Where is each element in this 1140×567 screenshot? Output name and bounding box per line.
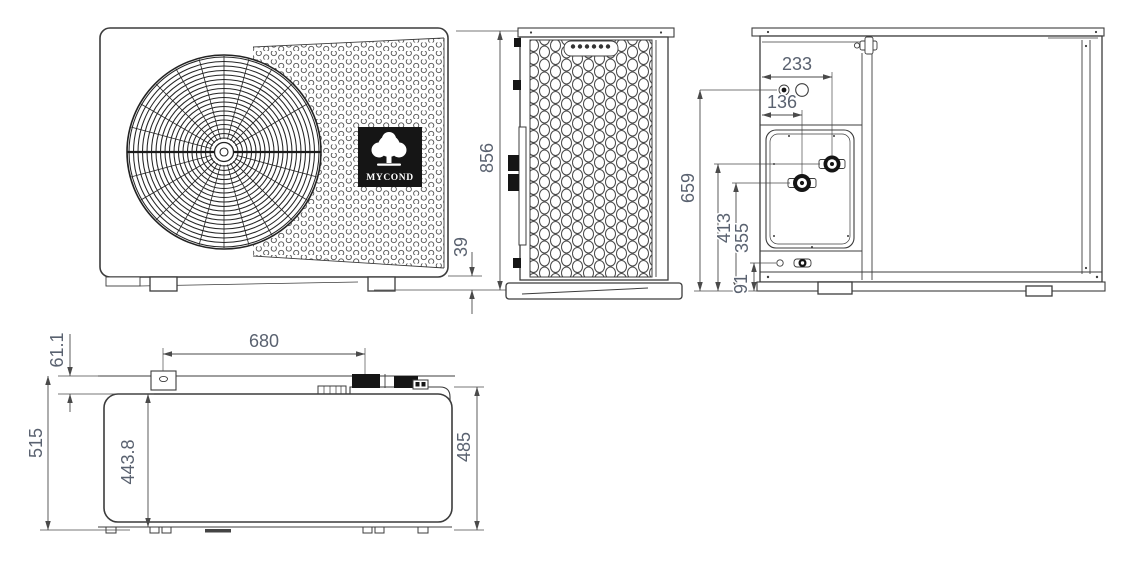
side-perforated-panel xyxy=(530,40,652,277)
back-top-cap xyxy=(752,28,1104,36)
dim-text-413: 413 xyxy=(714,213,734,243)
side-base xyxy=(506,283,682,299)
top-bottom-plate xyxy=(98,527,452,533)
drain-hole-icon xyxy=(777,260,783,266)
drain-fitting-icon xyxy=(794,259,811,267)
dim-top-cover-depth: 485 xyxy=(454,387,484,530)
dim-text-515: 515 xyxy=(26,428,46,458)
access-panel xyxy=(766,130,854,248)
dim-text-136: 136 xyxy=(767,92,797,112)
back-right-foot xyxy=(1026,286,1052,296)
dim-text-355: 355 xyxy=(732,223,752,253)
cable-port-icon xyxy=(796,84,809,97)
side-top-cap xyxy=(518,28,674,37)
dim-top-bracket-spacing: 680 xyxy=(163,331,365,374)
brand-logo-text: MYCOND xyxy=(366,173,413,183)
dim-text-659: 659 xyxy=(678,173,698,203)
front-base xyxy=(106,277,395,291)
top-body-outline xyxy=(104,394,452,522)
side-connector-upper xyxy=(508,155,519,171)
brand-logo: MYCOND xyxy=(358,127,422,187)
back-left-foot xyxy=(818,282,852,294)
small-terminal-icon xyxy=(413,380,428,389)
side-view: 856 xyxy=(456,28,682,299)
center-pad xyxy=(205,529,231,533)
dim-text-233: 233 xyxy=(782,54,812,74)
front-left-foot xyxy=(150,277,177,291)
dim-text-680: 680 xyxy=(249,331,279,351)
mounting-bracket xyxy=(151,371,176,390)
side-connector-lower xyxy=(508,174,519,191)
dim-text-485: 485 xyxy=(454,432,474,462)
technical-drawing: MYCOND 39 xyxy=(0,0,1140,567)
side-handle xyxy=(564,41,618,56)
dim-text-443-8: 443.8 xyxy=(118,439,138,484)
back-view: 233 136 659 413 355 91 xyxy=(678,28,1105,296)
front-right-foot xyxy=(368,277,395,291)
dim-text-856: 856 xyxy=(477,143,497,173)
dim-text-61-1: 61.1 xyxy=(47,332,67,367)
top-connector-1 xyxy=(352,374,380,388)
fan-grille-icon xyxy=(127,55,321,249)
front-view: MYCOND 39 xyxy=(100,28,506,314)
top-view: 61.1 515 443.8 680 485 xyxy=(26,331,484,533)
ribbed-vent-icon xyxy=(318,386,346,394)
drawing-canvas: MYCOND 39 xyxy=(0,0,1140,567)
dim-text-39: 39 xyxy=(451,237,471,257)
dim-text-91: 91 xyxy=(731,274,751,294)
